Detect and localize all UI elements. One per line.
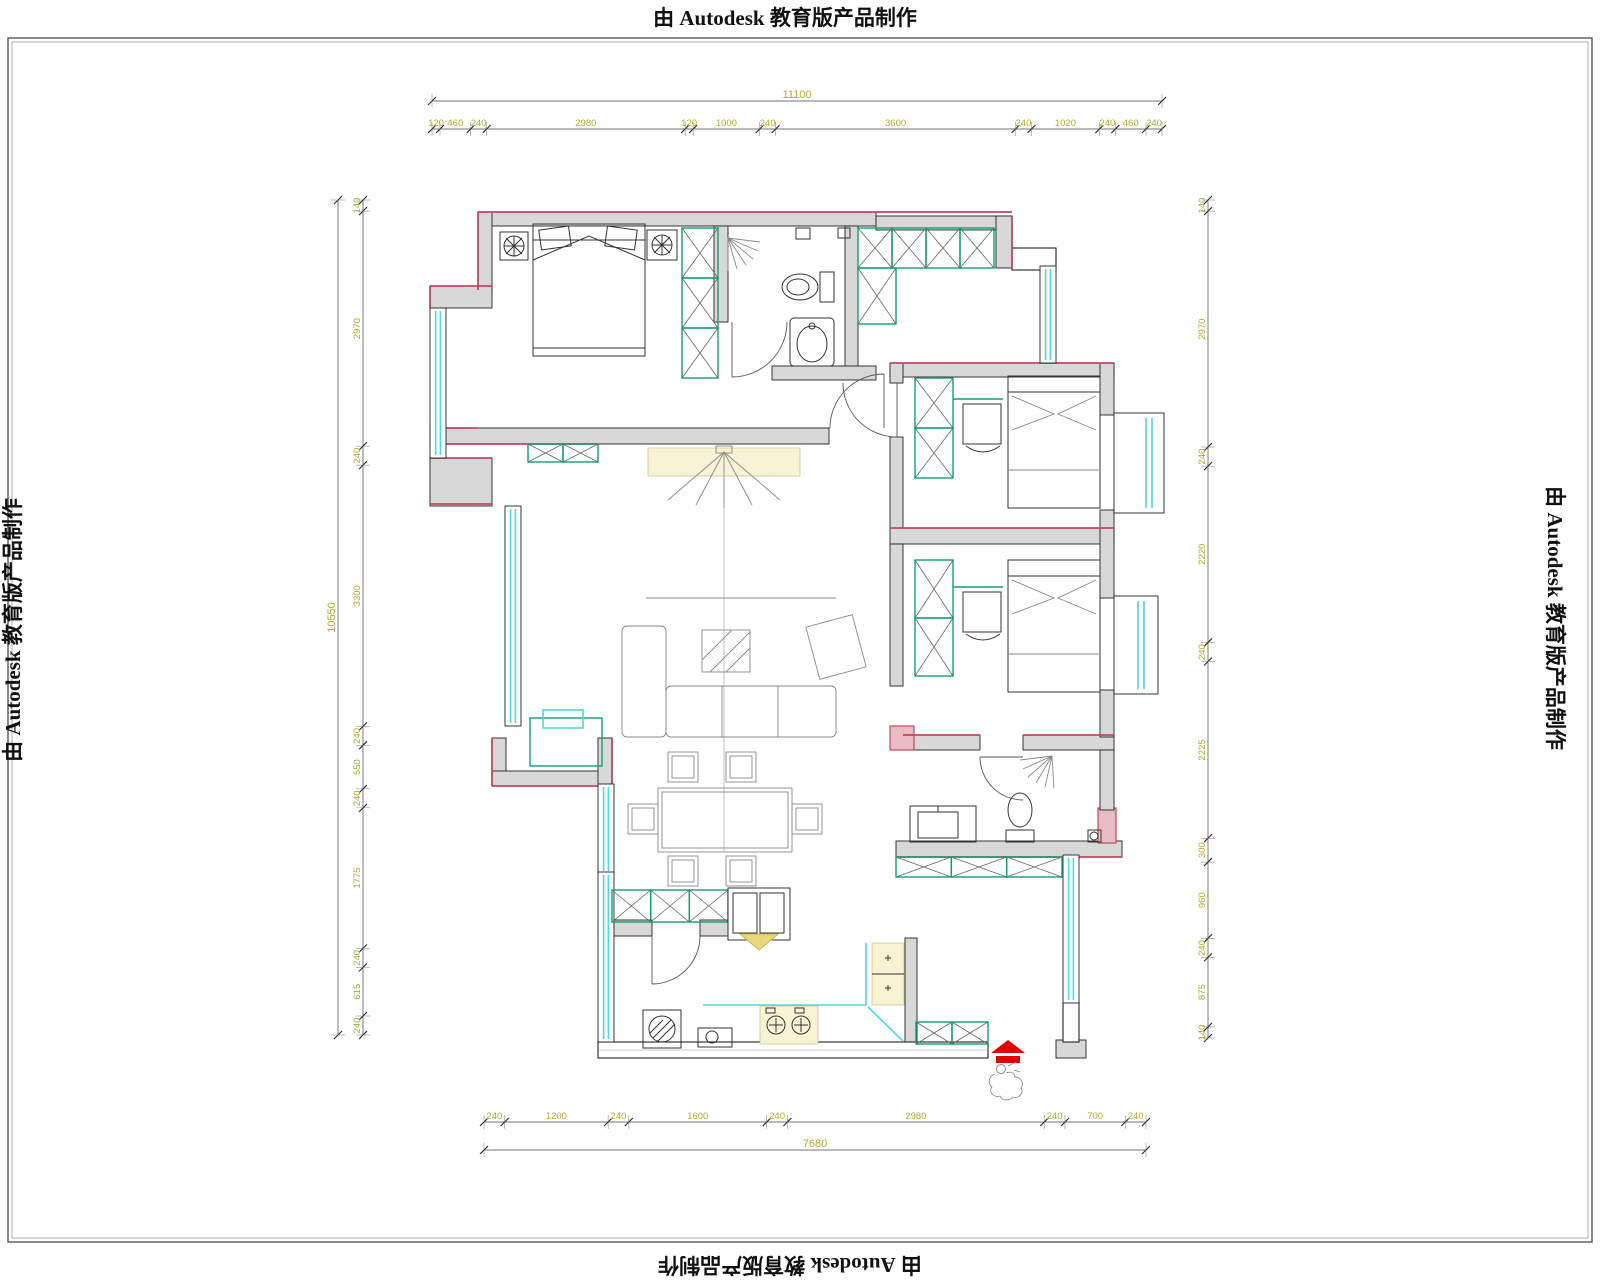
window-living-west-lower (598, 784, 614, 874)
svg-text:240: 240 (1047, 1111, 1063, 1122)
svg-text:2970: 2970 (1197, 319, 1208, 340)
master-wardrobe (682, 228, 718, 378)
svg-text:960: 960 (1197, 892, 1208, 908)
svg-text:460: 460 (447, 118, 463, 129)
svg-text:2220: 2220 (1197, 544, 1208, 565)
svg-text:240: 240 (486, 1111, 502, 1122)
svg-text:240: 240 (352, 1018, 363, 1034)
svg-text:3300: 3300 (352, 585, 363, 606)
entry-wardrobe-row (858, 228, 994, 268)
bedroom3-desk-chair (953, 587, 1003, 640)
entry-wardrobe-side (858, 268, 896, 324)
entry-arrow-icon (991, 1040, 1025, 1053)
living-room (530, 446, 866, 886)
dining-table (628, 752, 822, 886)
dim-chain-left_segments: 140297024033002405502401775240615240 (352, 196, 370, 1039)
kitchen-fixtures (643, 888, 904, 1048)
svg-text:2980: 2980 (575, 118, 596, 129)
watermark-bottom: 由 Autodesk 教育版产品制作 (658, 1253, 922, 1277)
autocad-floorplan-sheet: 由 Autodesk 教育版产品制作 由 Autodesk 教育版产品制作 由 … (0, 0, 1600, 1280)
svg-text:240: 240 (760, 118, 776, 129)
svg-text:240: 240 (611, 1111, 627, 1122)
svg-text:1200: 1200 (546, 1111, 567, 1122)
bath2-shower-spray-icon (1020, 756, 1054, 788)
hall-shoe-cabinet (916, 1022, 988, 1044)
svg-text:240: 240 (352, 950, 363, 966)
bedroom2-door (843, 383, 897, 437)
kitchen-door (652, 936, 700, 984)
master-bed (533, 224, 645, 356)
svg-text:300: 300 (1197, 842, 1208, 858)
bedroom2-wardrobe (915, 378, 953, 478)
bathroom2-fixtures (910, 756, 1101, 842)
bay-window-bedroom2 (1114, 413, 1164, 513)
dim-chain-left_total: 10550 (326, 196, 345, 1039)
svg-text:240: 240 (1128, 1111, 1144, 1122)
svg-text:2980: 2980 (905, 1111, 926, 1122)
svg-text:10550: 10550 (326, 602, 338, 633)
svg-text:240: 240 (471, 118, 487, 129)
accent-chair (806, 615, 866, 680)
dining-chairs (628, 752, 822, 886)
kitchen-wall-cabinet (612, 890, 728, 922)
svg-text:7680: 7680 (803, 1138, 827, 1150)
bedroom2-desk-chair (953, 399, 1003, 452)
dim-chain-top_total: 11100 (428, 89, 1166, 108)
svg-text:240: 240 (769, 1111, 785, 1122)
svg-text:240: 240 (1197, 449, 1208, 465)
entry-figure (989, 1062, 1022, 1100)
nightstand-left (500, 232, 528, 260)
master-bedroom-furniture (500, 224, 677, 356)
svg-text:120: 120 (428, 118, 444, 129)
sink-icon (790, 318, 834, 366)
dimension-chains: 1110012046024029801201000240360024010202… (326, 89, 1215, 1157)
cabinet-arrow (740, 934, 778, 950)
svg-text:240: 240 (352, 448, 363, 464)
svg-text:240: 240 (352, 728, 363, 744)
doors (652, 322, 1023, 984)
svg-text:2225: 2225 (1197, 739, 1208, 760)
svg-text:240: 240 (352, 790, 363, 806)
bedroom3-bed (1008, 560, 1100, 692)
dim-chain-bottom_total: 7680 (480, 1138, 1150, 1157)
svg-text:120: 120 (681, 118, 697, 129)
svg-text:240: 240 (1146, 118, 1162, 129)
svg-text:240: 240 (1099, 118, 1115, 129)
watermark-left: 由 Autodesk 教育版产品制作 (1, 498, 25, 762)
hall-cabinet (896, 857, 1062, 877)
svg-text:1775: 1775 (352, 868, 363, 889)
watermark-top: 由 Autodesk 教育版产品制作 (653, 6, 917, 30)
fridge-icon (872, 943, 904, 1005)
svg-text:615: 615 (352, 984, 363, 1000)
svg-text:140: 140 (1197, 198, 1208, 214)
living-shoe-cabinet (528, 444, 598, 462)
coffee-table (702, 630, 750, 672)
window-entry-north (1040, 266, 1056, 363)
window-hall-east (1063, 855, 1079, 1003)
bedroom3-wardrobe (915, 560, 953, 676)
stove-icon (760, 1006, 818, 1044)
sofa-set (622, 626, 836, 737)
pass-cabinet (728, 888, 790, 950)
window-master-west (430, 308, 446, 458)
svg-text:240: 240 (1016, 118, 1032, 129)
bedroom2-bed (1008, 376, 1100, 508)
entry-marker (989, 1040, 1025, 1100)
svg-text:3600: 3600 (885, 118, 906, 129)
watermark-right: 由 Autodesk 教育版产品制作 (1543, 486, 1567, 750)
window-living-west (505, 506, 521, 726)
svg-text:1000: 1000 (716, 118, 737, 129)
svg-text:11100: 11100 (783, 89, 812, 101)
svg-text:700: 700 (1087, 1111, 1103, 1122)
bathroom1-fixtures (728, 228, 850, 366)
svg-text:240: 240 (1197, 644, 1208, 660)
svg-text:550: 550 (352, 759, 363, 775)
vent-box (796, 228, 810, 239)
svg-text:875: 875 (1197, 984, 1208, 1000)
svg-text:460: 460 (1123, 118, 1139, 129)
bedroom2-furniture (953, 376, 1100, 508)
floor-plan-canvas: 由 Autodesk 教育版产品制作 由 Autodesk 教育版产品制作 由 … (0, 0, 1600, 1280)
bay-window-bedroom3 (1114, 596, 1158, 694)
nightstand-right (647, 230, 677, 260)
svg-text:1600: 1600 (687, 1111, 708, 1122)
svg-text:2970: 2970 (352, 318, 363, 339)
svg-text:140: 140 (352, 198, 363, 214)
svg-text:240: 240 (1197, 940, 1208, 956)
bath2-sink-counter (910, 806, 976, 842)
toilet-icon (782, 272, 834, 302)
niche-cabinet (530, 710, 602, 766)
shower-spray-icon (728, 238, 760, 271)
svg-text:140: 140 (1197, 1025, 1208, 1041)
dim-chain-right_segments: 140297024022202402225300960240875140 (1197, 196, 1215, 1042)
dim-chain-top_segments: 1204602402980120100024036002401020240460… (428, 118, 1166, 136)
svg-text:1020: 1020 (1055, 118, 1076, 129)
dim-chain-bottom_segments: 240120024016002402980240700240 (480, 1111, 1150, 1129)
